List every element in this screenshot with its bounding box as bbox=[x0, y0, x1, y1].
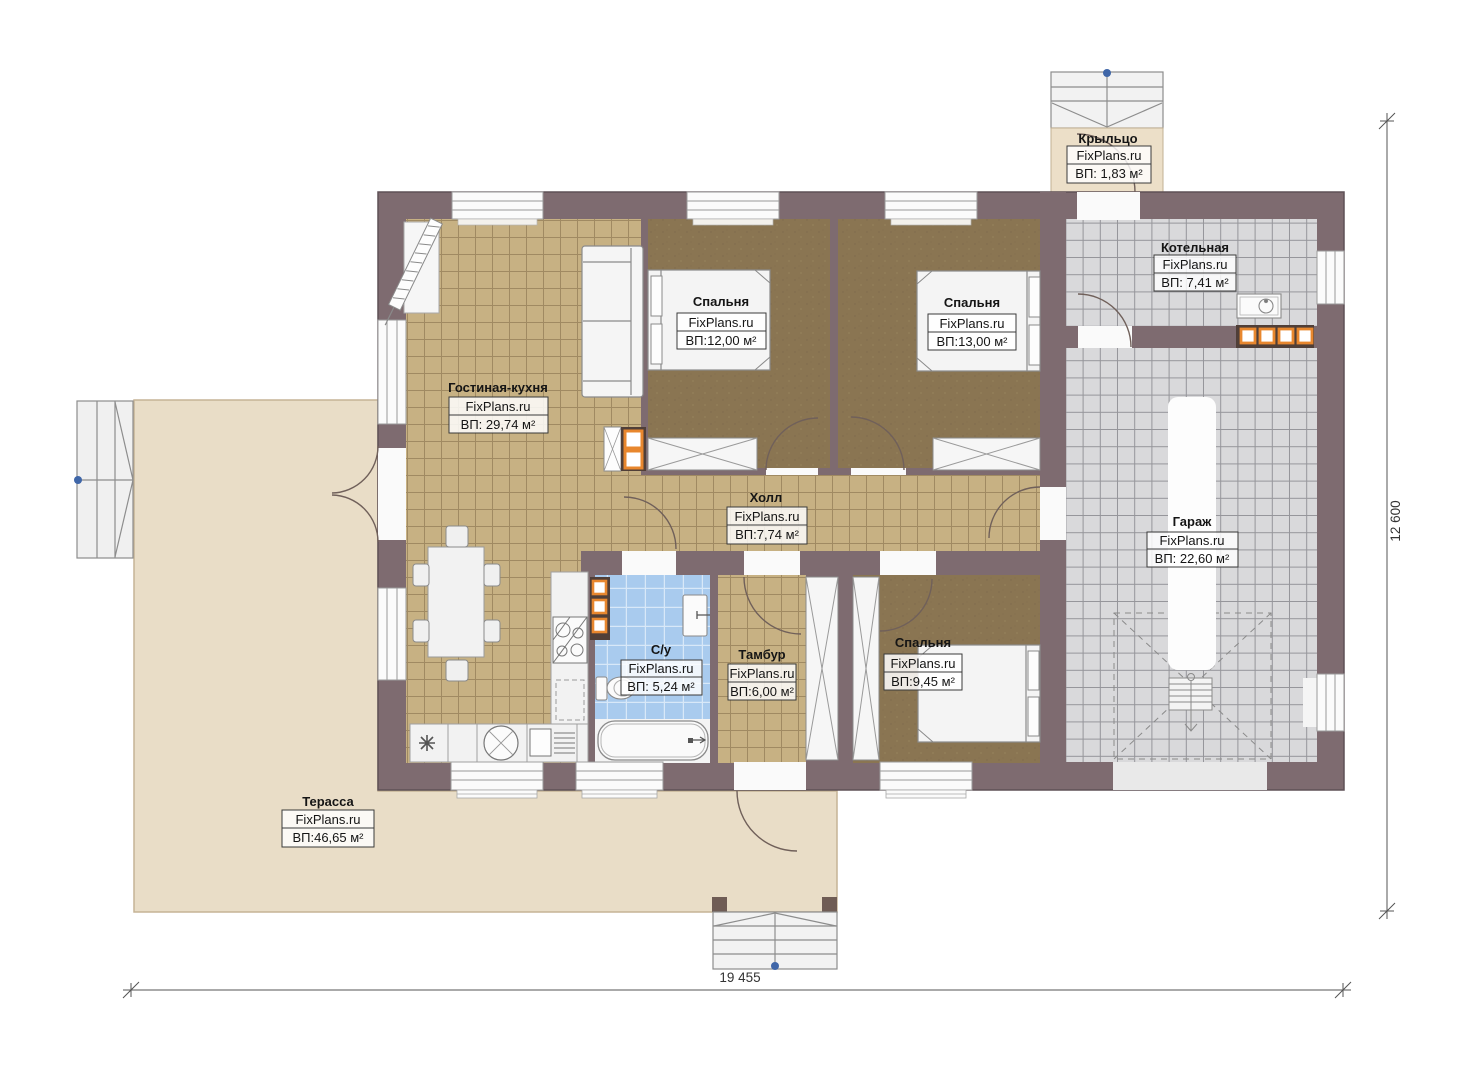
svg-text:Спальня: Спальня bbox=[895, 635, 951, 650]
svg-text:ВП:6,00 м²: ВП:6,00 м² bbox=[730, 684, 794, 699]
svg-text:ВП: 1,83 м²: ВП: 1,83 м² bbox=[1075, 166, 1143, 181]
svg-text:ВП:7,74 м²: ВП:7,74 м² bbox=[735, 527, 799, 542]
svg-text:ВП: 22,60 м²: ВП: 22,60 м² bbox=[1155, 551, 1230, 566]
svg-text:ВП:46,65 м²: ВП:46,65 м² bbox=[292, 830, 364, 845]
svg-text:FixPlans.ru: FixPlans.ru bbox=[939, 316, 1004, 331]
svg-text:Спальня: Спальня bbox=[944, 295, 1000, 310]
svg-text:FixPlans.ru: FixPlans.ru bbox=[688, 315, 753, 330]
svg-text:FixPlans.ru: FixPlans.ru bbox=[465, 399, 530, 414]
svg-text:FixPlans.ru: FixPlans.ru bbox=[628, 661, 693, 676]
svg-text:ВП: 7,41 м²: ВП: 7,41 м² bbox=[1161, 275, 1229, 290]
svg-text:FixPlans.ru: FixPlans.ru bbox=[734, 509, 799, 524]
svg-text:Котельная: Котельная bbox=[1161, 240, 1229, 255]
svg-text:ВП:12,00 м²: ВП:12,00 м² bbox=[685, 333, 757, 348]
svg-text:Гостиная-кухня: Гостиная-кухня bbox=[448, 380, 548, 395]
svg-text:FixPlans.ru: FixPlans.ru bbox=[1076, 148, 1141, 163]
svg-text:FixPlans.ru: FixPlans.ru bbox=[890, 656, 955, 671]
svg-text:ВП: 5,24 м²: ВП: 5,24 м² bbox=[627, 679, 695, 694]
svg-text:FixPlans.ru: FixPlans.ru bbox=[295, 812, 360, 827]
svg-text:ВП:9,45 м²: ВП:9,45 м² bbox=[891, 674, 955, 689]
svg-text:FixPlans.ru: FixPlans.ru bbox=[1162, 257, 1227, 272]
svg-text:Холл: Холл bbox=[750, 490, 783, 505]
svg-text:Спальня: Спальня bbox=[693, 294, 749, 309]
svg-text:Терасса: Терасса bbox=[302, 794, 354, 809]
svg-text:FixPlans.ru: FixPlans.ru bbox=[729, 666, 794, 681]
svg-text:С/у: С/у bbox=[651, 642, 672, 657]
svg-text:Гараж: Гараж bbox=[1173, 514, 1213, 529]
svg-text:ВП:13,00 м²: ВП:13,00 м² bbox=[936, 334, 1008, 349]
svg-text:12 600: 12 600 bbox=[1388, 500, 1403, 541]
svg-text:Крыльцо: Крыльцо bbox=[1078, 131, 1137, 146]
svg-text:19 455: 19 455 bbox=[719, 970, 760, 985]
svg-text:ВП: 29,74 м²: ВП: 29,74 м² bbox=[461, 417, 536, 432]
svg-text:FixPlans.ru: FixPlans.ru bbox=[1159, 533, 1224, 548]
svg-text:Тамбур: Тамбур bbox=[738, 647, 785, 662]
